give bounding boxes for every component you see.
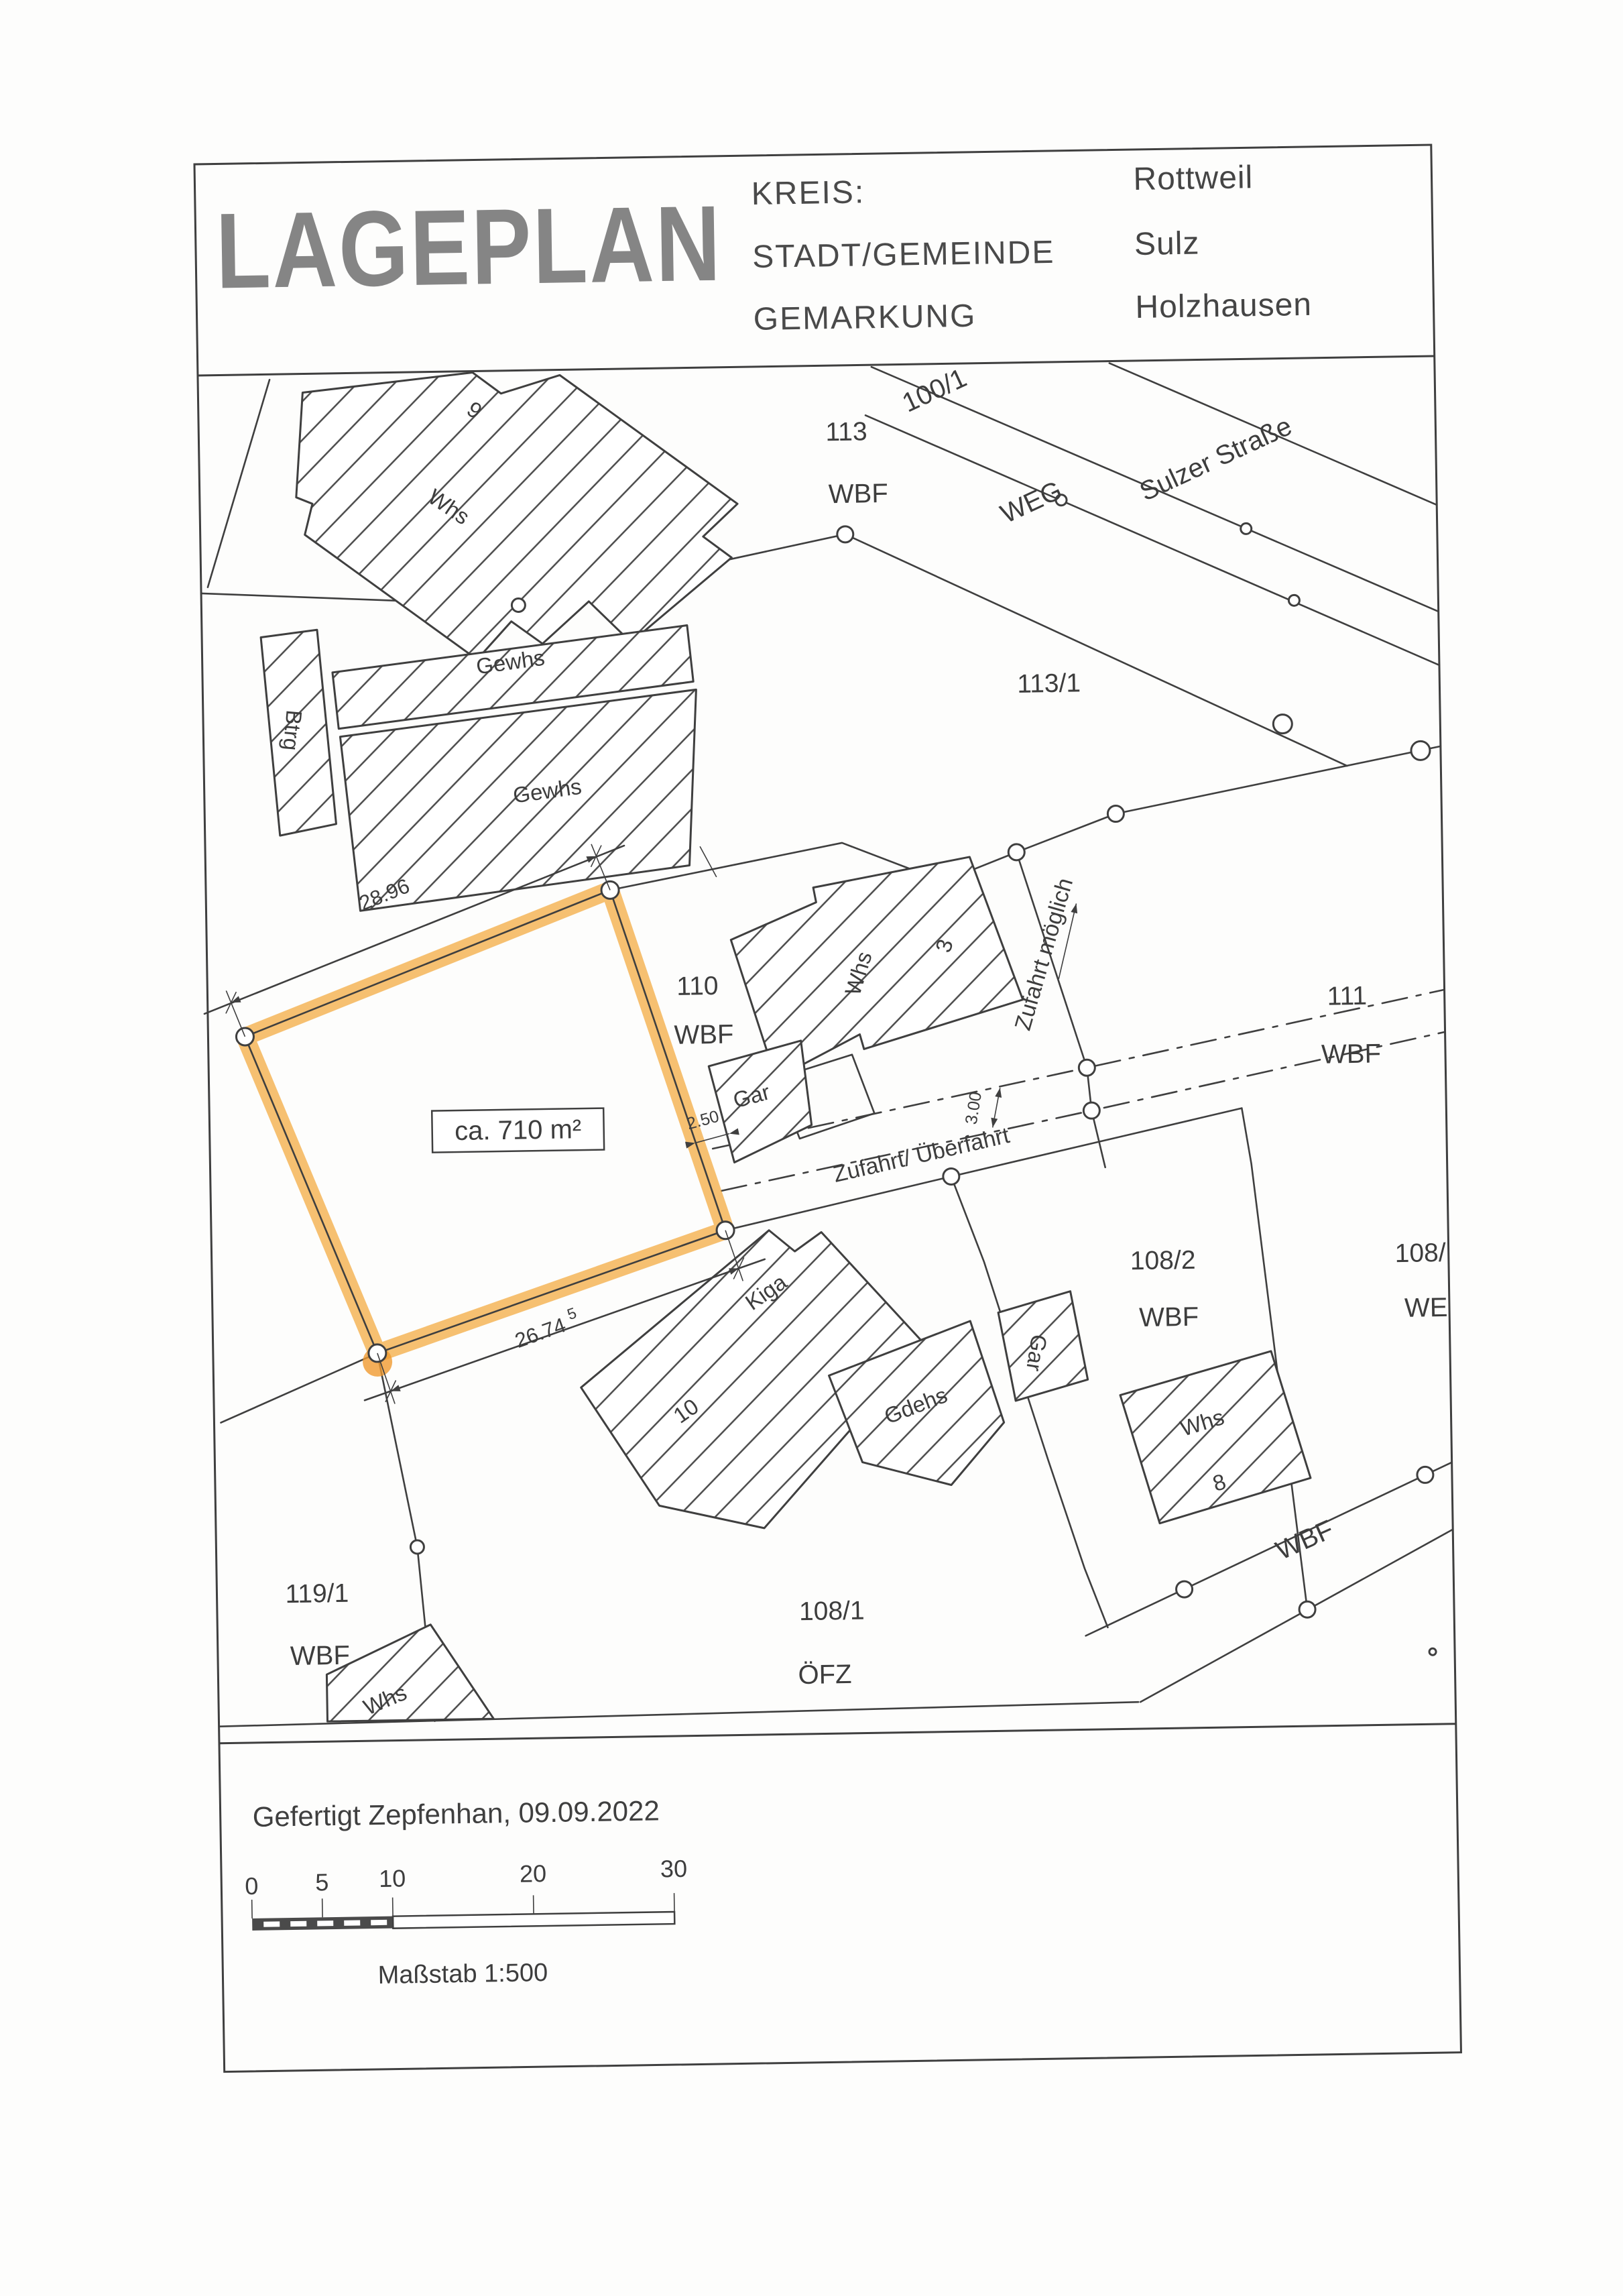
parcel-111-number: 111 <box>1327 982 1367 1011</box>
parcel-108-2-number: 108/2 <box>1130 1246 1196 1276</box>
survey-point <box>1107 805 1124 821</box>
header-divider <box>198 356 1435 376</box>
dim-bottom-sup: 5 <box>565 1304 579 1323</box>
survey-point <box>1241 523 1252 534</box>
survey-point <box>1299 1601 1315 1617</box>
building-btrg-label: Btrg <box>278 709 306 752</box>
label-weg: WEG <box>996 475 1067 529</box>
parcel-108-r-number: 108/ <box>1394 1239 1446 1268</box>
parcel-113-usage: WBF <box>829 479 889 509</box>
survey-point <box>1417 1467 1433 1483</box>
buildings-layer <box>257 359 1314 1722</box>
survey-point <box>512 598 525 612</box>
survey-point <box>1411 741 1430 760</box>
label-zufahrt-ueberfahrt: Zufahrt/ Überfahrt <box>831 1123 1012 1188</box>
parcel-110-number: 110 <box>676 972 719 1001</box>
zufahrt-moeglich-arrow-head <box>1071 903 1077 913</box>
boundary-113-west <box>204 380 273 587</box>
survey-point <box>837 526 853 542</box>
building-whs-119 <box>326 1623 493 1721</box>
parcel-108-r-usage: WE <box>1404 1293 1448 1323</box>
parcel-113-1-number: 113/1 <box>1017 669 1081 698</box>
kreis-value: Rottweil <box>1133 160 1254 197</box>
dim-slash <box>225 992 237 1013</box>
survey-point <box>1176 1581 1192 1597</box>
building-whs-3 <box>729 856 1024 1080</box>
title-block: LAGEPLAN KREIS: Rottweil STADT/GEMEINDE … <box>215 159 1312 346</box>
scale-bar-dash <box>317 1920 333 1926</box>
scale-tick-5: 5 <box>315 1868 329 1896</box>
survey-point <box>943 1168 959 1184</box>
label-sulzer-strasse: Sulzer Straße <box>1135 411 1296 507</box>
survey-point <box>1429 1648 1436 1655</box>
dim-corridor-value: 3.00 <box>962 1090 985 1125</box>
created-note: Gefertigt Zepfenhan, 09.09.2022 <box>252 1794 660 1833</box>
page-title: LAGEPLAN <box>215 183 723 311</box>
building-whs-8 <box>1120 1351 1311 1524</box>
scale-bar-dash <box>290 1921 306 1927</box>
label-parcel-100-1: 100/1 <box>898 363 971 418</box>
scale-tick-0: 0 <box>245 1872 259 1900</box>
scale-bar-light-segment <box>393 1912 674 1929</box>
highlighted-plot: ca. 710 m² <box>234 880 736 1379</box>
boundary-tick <box>700 846 717 877</box>
gemarkung-value: Holzhausen <box>1135 287 1312 325</box>
parcel-119-1-number: 119/1 <box>285 1579 349 1609</box>
gemarkung-label: GEMARKUNG <box>753 298 976 337</box>
dim-bottom-main: 26.74 <box>512 1313 569 1353</box>
scale-tick-30: 30 <box>660 1855 688 1883</box>
scale-bar-dash <box>344 1920 360 1925</box>
survey-point <box>410 1540 424 1554</box>
survey-point <box>1079 1059 1095 1076</box>
parcel-119-1-usage: WBF <box>290 1641 351 1671</box>
parcel-111-usage: WBF <box>1321 1039 1382 1069</box>
survey-point <box>1288 595 1299 606</box>
footer-divider <box>219 1724 1456 1743</box>
parcel-108-1-usage: ÖFZ <box>798 1660 852 1690</box>
parcel-108-2-usage: WBF <box>1139 1302 1199 1332</box>
parcel-108-1-number: 108/1 <box>799 1597 865 1627</box>
scale-bar: 0 5 10 20 30 <box>245 1855 688 1931</box>
parcel-110-usage: WBF <box>674 1020 734 1050</box>
dim-ext-a <box>226 990 245 1037</box>
dim-arrow <box>995 1088 1002 1098</box>
area-label: ca. 710 m² <box>455 1114 582 1146</box>
building-whs-9 <box>294 368 740 662</box>
road-edge-3 <box>865 406 1439 674</box>
gemeinde-label: STADT/GEMEINDE <box>752 235 1055 275</box>
scale-bar-dash <box>263 1921 280 1927</box>
scale-label: Maßstab 1:500 <box>377 1959 548 1990</box>
boundary-119-1 <box>220 1353 379 1423</box>
gemeinde-value: Sulz <box>1134 225 1200 262</box>
survey-point <box>1273 714 1292 733</box>
footer-block: Gefertigt Zepfenhan, 09.09.2022 0 5 10 2… <box>243 1794 688 1992</box>
scale-bar-dash <box>371 1920 387 1925</box>
kreis-label: KREIS: <box>751 174 865 212</box>
survey-point <box>1008 844 1024 860</box>
parcel-113-number: 113 <box>825 417 867 447</box>
scale-tick-20: 20 <box>520 1859 547 1888</box>
site-plan-drawing: LAGEPLAN KREIS: Rottweil STADT/GEMEINDE … <box>0 0 1623 2296</box>
lageplan-scan-page: LAGEPLAN KREIS: Rottweil STADT/GEMEINDE … <box>0 0 1623 2296</box>
label-wbf-strip: WBF <box>1272 1515 1338 1566</box>
survey-point <box>1083 1102 1099 1118</box>
scale-tick-10: 10 <box>379 1864 406 1892</box>
